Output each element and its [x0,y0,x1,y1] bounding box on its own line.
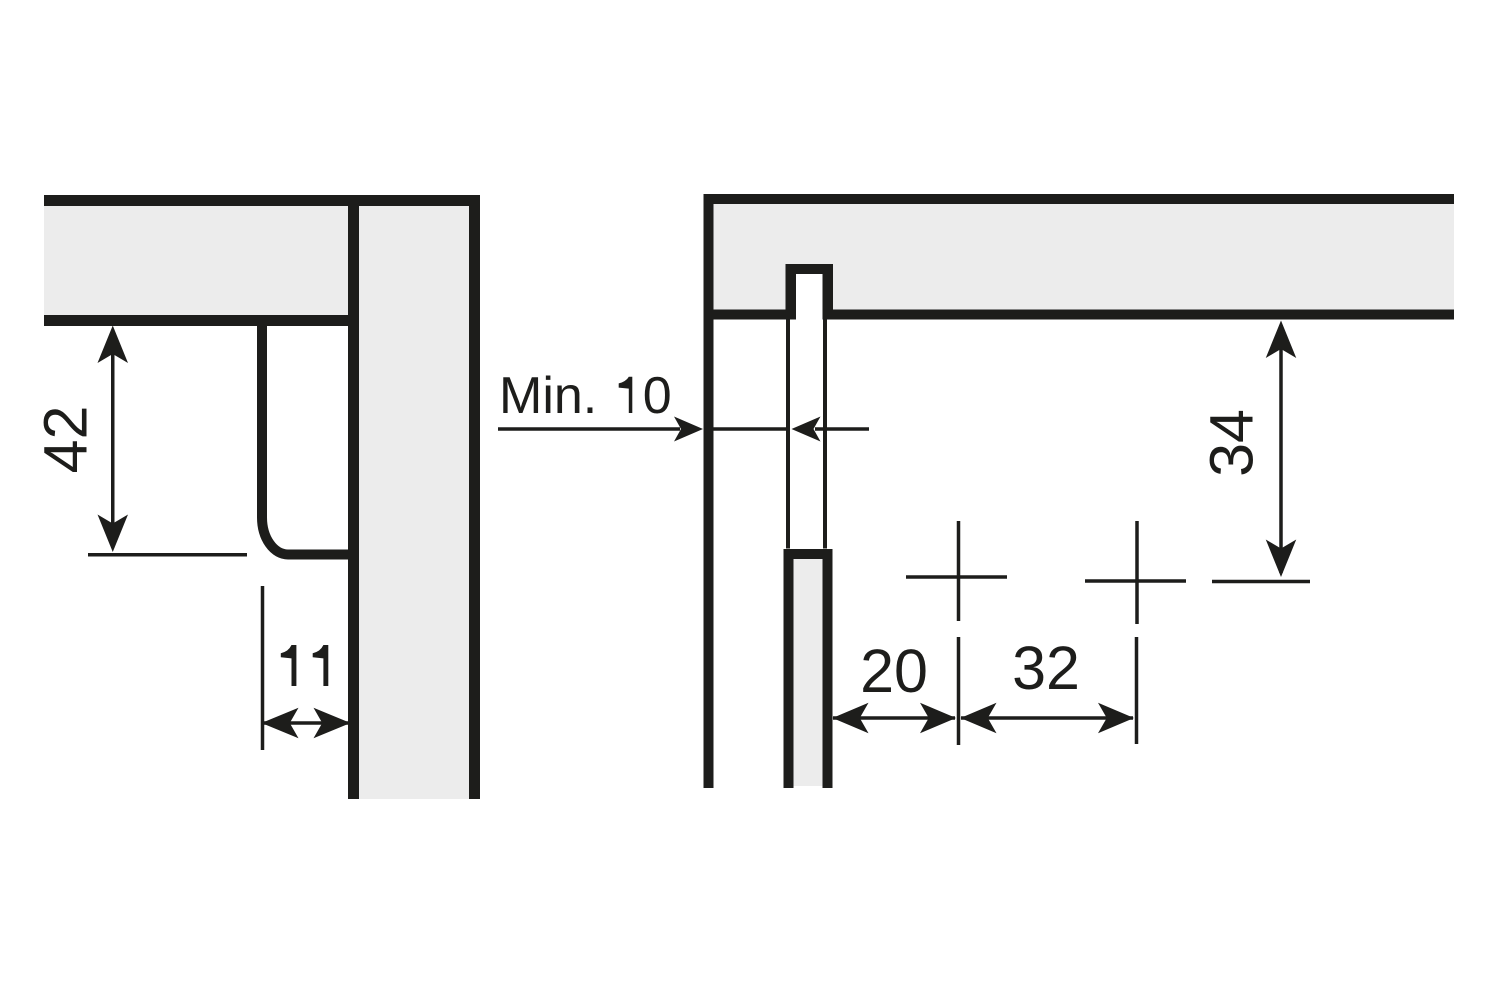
svg-text:42: 42 [32,406,100,474]
svg-text:32: 32 [1012,634,1080,702]
svg-text:Min.: Min. [499,367,597,425]
svg-text:34: 34 [1198,409,1266,477]
svg-text:0: 0 [643,367,672,425]
svg-text:20: 20 [860,637,928,705]
